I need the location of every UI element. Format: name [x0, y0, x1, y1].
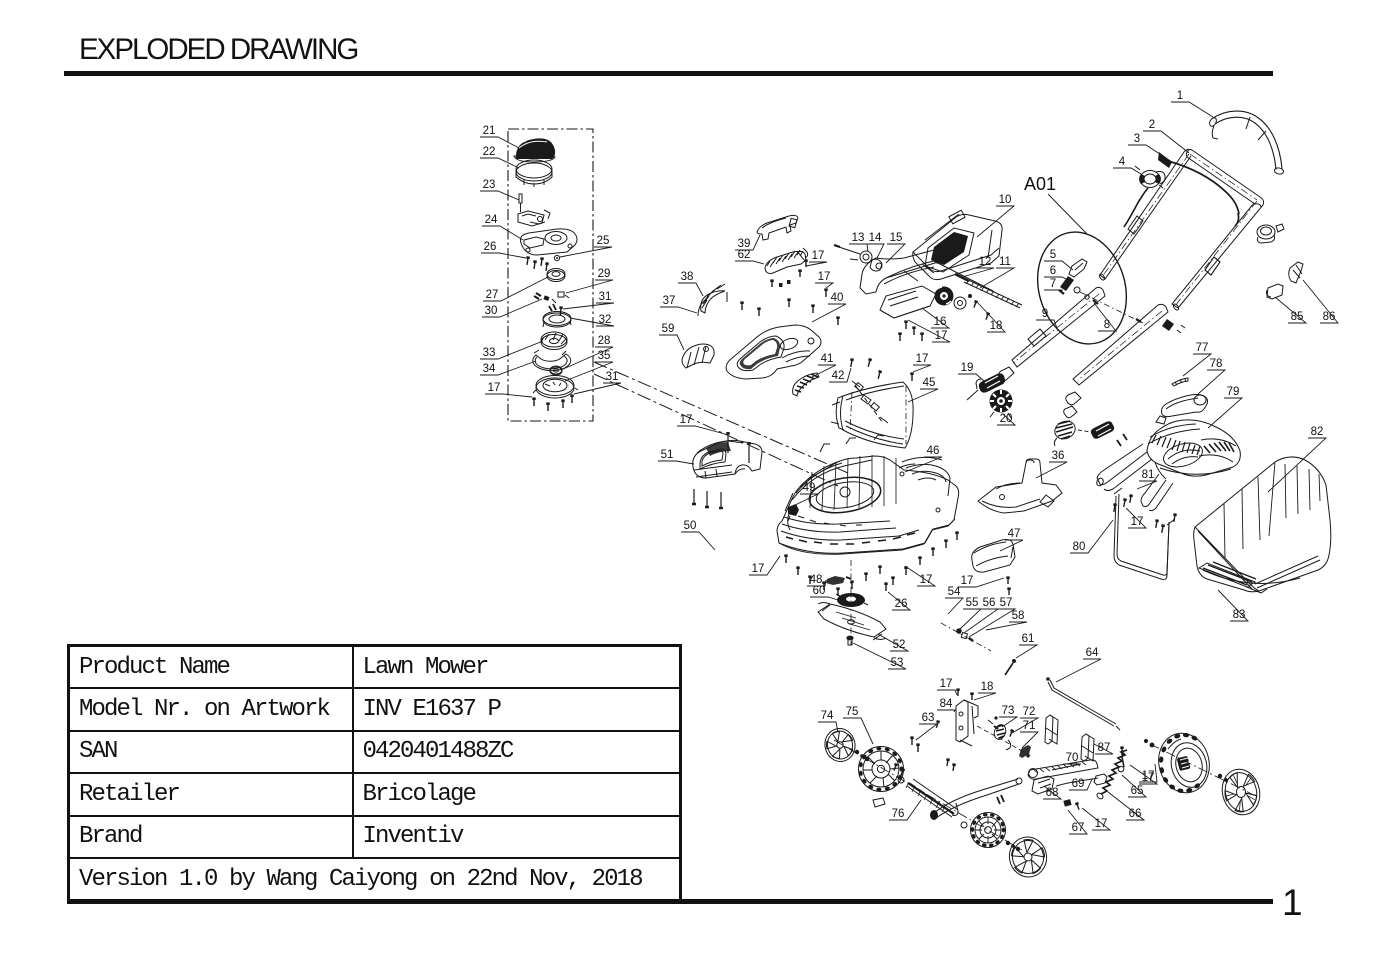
- svg-text:30: 30: [485, 305, 498, 317]
- svg-text:74: 74: [821, 710, 834, 722]
- svg-text:36: 36: [1052, 450, 1065, 462]
- svg-text:31: 31: [599, 291, 612, 303]
- svg-text:70: 70: [1066, 752, 1079, 764]
- svg-text:26: 26: [484, 241, 497, 253]
- svg-text:40: 40: [831, 292, 844, 304]
- svg-text:12: 12: [979, 256, 992, 268]
- svg-text:17: 17: [1142, 770, 1155, 782]
- svg-text:81: 81: [1142, 469, 1155, 481]
- svg-text:13: 13: [852, 232, 865, 244]
- svg-text:17: 17: [752, 563, 765, 575]
- svg-text:37: 37: [663, 295, 676, 307]
- svg-text:10: 10: [999, 194, 1012, 206]
- svg-text:63: 63: [922, 712, 935, 724]
- svg-text:65: 65: [1131, 785, 1144, 797]
- svg-text:50: 50: [684, 520, 697, 532]
- svg-text:34: 34: [483, 363, 496, 375]
- svg-text:38: 38: [681, 271, 694, 283]
- svg-text:59: 59: [662, 323, 675, 335]
- svg-text:6: 6: [1050, 265, 1056, 277]
- svg-text:77: 77: [1196, 342, 1209, 354]
- svg-text:17: 17: [916, 353, 929, 365]
- svg-text:5: 5: [1050, 249, 1056, 261]
- svg-text:22: 22: [483, 146, 496, 158]
- svg-text:7: 7: [1050, 278, 1056, 290]
- svg-text:69: 69: [1072, 778, 1085, 790]
- svg-text:17: 17: [935, 330, 948, 342]
- svg-text:2: 2: [1149, 119, 1155, 131]
- svg-text:17: 17: [940, 678, 953, 690]
- svg-text:83: 83: [1233, 609, 1246, 621]
- svg-text:11: 11: [999, 256, 1011, 268]
- svg-text:17: 17: [680, 414, 693, 426]
- svg-text:42: 42: [832, 370, 845, 382]
- svg-text:35: 35: [598, 350, 611, 362]
- svg-text:41: 41: [821, 353, 834, 365]
- svg-text:27: 27: [486, 289, 499, 301]
- svg-text:17: 17: [488, 382, 501, 394]
- svg-text:26: 26: [895, 598, 908, 610]
- svg-text:4: 4: [1119, 156, 1126, 168]
- svg-text:73: 73: [1002, 705, 1015, 717]
- svg-text:60: 60: [813, 585, 826, 597]
- svg-text:9: 9: [1042, 308, 1048, 320]
- svg-text:54: 54: [948, 586, 961, 598]
- svg-text:76: 76: [892, 808, 905, 820]
- svg-text:64: 64: [1086, 647, 1099, 659]
- svg-text:A01: A01: [1024, 174, 1056, 194]
- svg-text:18: 18: [981, 681, 994, 693]
- svg-text:1: 1: [1177, 90, 1183, 102]
- svg-text:15: 15: [890, 232, 903, 244]
- svg-text:58: 58: [1012, 610, 1025, 622]
- svg-text:56: 56: [983, 597, 996, 609]
- svg-text:72: 72: [1023, 706, 1036, 718]
- svg-text:82: 82: [1311, 426, 1324, 438]
- svg-text:75: 75: [846, 706, 859, 718]
- svg-text:84: 84: [940, 698, 953, 710]
- svg-text:79: 79: [1227, 386, 1240, 398]
- svg-text:61: 61: [1022, 633, 1035, 645]
- svg-text:47: 47: [1008, 528, 1021, 540]
- svg-text:31: 31: [606, 371, 619, 383]
- svg-text:45: 45: [923, 377, 936, 389]
- svg-text:21: 21: [483, 125, 496, 137]
- svg-text:20: 20: [1000, 413, 1013, 425]
- svg-text:85: 85: [1291, 311, 1304, 323]
- svg-text:80: 80: [1073, 541, 1086, 553]
- svg-text:17: 17: [1131, 516, 1144, 528]
- svg-text:29: 29: [598, 268, 611, 280]
- svg-text:51: 51: [661, 449, 674, 461]
- svg-text:62: 62: [738, 249, 751, 261]
- svg-text:17: 17: [812, 250, 825, 262]
- svg-text:57: 57: [1000, 597, 1013, 609]
- svg-text:52: 52: [893, 639, 906, 651]
- svg-text:78: 78: [1210, 358, 1223, 370]
- svg-text:8: 8: [1104, 319, 1110, 331]
- svg-text:28: 28: [598, 335, 611, 347]
- svg-text:33: 33: [483, 347, 496, 359]
- svg-text:46: 46: [927, 445, 940, 457]
- svg-text:24: 24: [485, 214, 498, 226]
- svg-text:3: 3: [1134, 133, 1140, 145]
- svg-text:17: 17: [818, 271, 831, 283]
- svg-text:23: 23: [483, 179, 496, 191]
- svg-text:25: 25: [597, 235, 610, 247]
- svg-text:19: 19: [961, 362, 974, 374]
- svg-text:71: 71: [1023, 720, 1036, 732]
- svg-text:17: 17: [961, 575, 974, 587]
- svg-text:14: 14: [869, 232, 882, 244]
- svg-text:87: 87: [1098, 742, 1111, 754]
- svg-text:55: 55: [966, 597, 979, 609]
